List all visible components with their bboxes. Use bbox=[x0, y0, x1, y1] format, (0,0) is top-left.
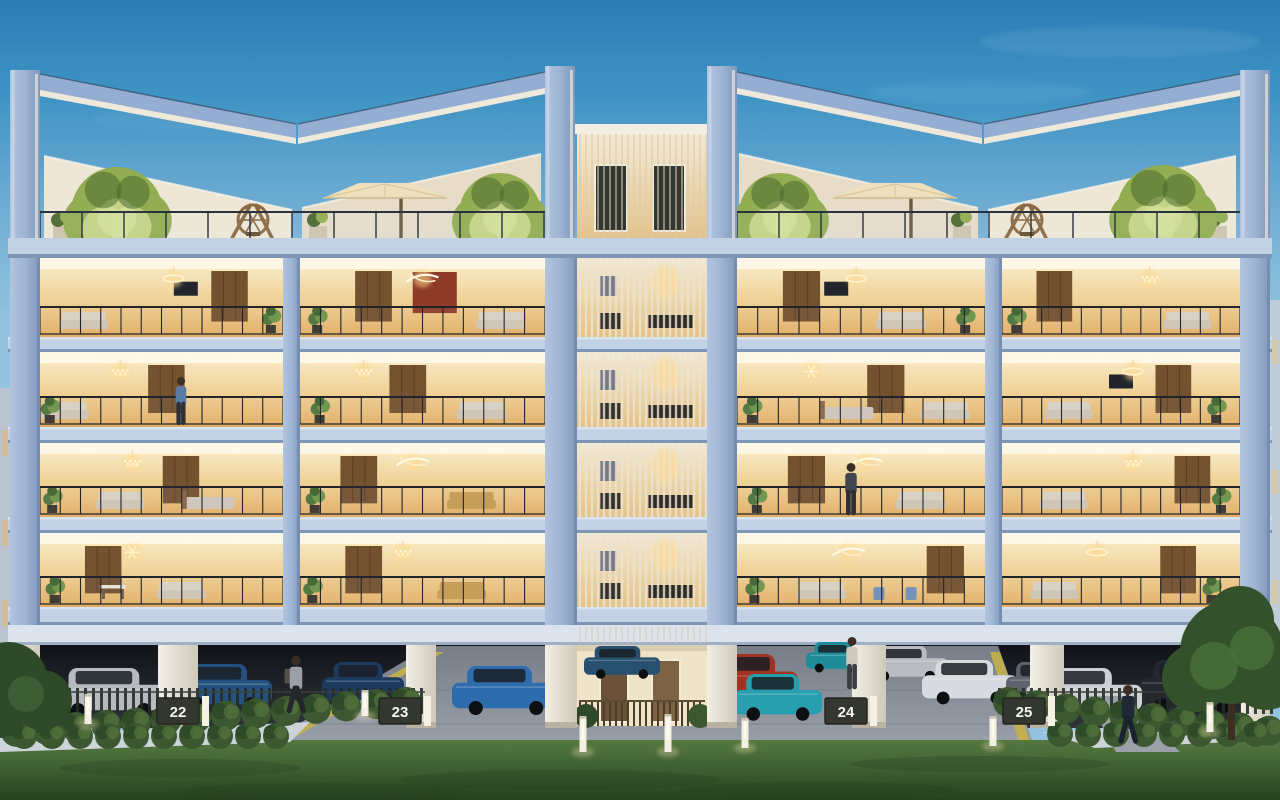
apartment-floors bbox=[8, 258, 1272, 625]
ceiling-spotlight bbox=[347, 447, 350, 450]
ceiling-spotlight bbox=[445, 537, 448, 540]
crystal-drop bbox=[394, 550, 397, 553]
apartment-unit bbox=[737, 258, 985, 337]
building-exterior-render: 22232425 bbox=[0, 0, 1280, 800]
tree-shadow-foliage bbox=[117, 176, 150, 209]
tree-canopy bbox=[1230, 626, 1274, 670]
ceiling-spotlight bbox=[785, 537, 788, 540]
slab-highlight bbox=[8, 607, 1272, 610]
apartment-unit bbox=[300, 352, 545, 427]
unit-ceiling bbox=[300, 258, 545, 269]
car-windows bbox=[882, 649, 921, 659]
crystal-drop bbox=[116, 369, 119, 372]
cove-light bbox=[1010, 454, 1232, 456]
crystal-drop bbox=[365, 374, 367, 376]
tree-shadow-foliage bbox=[500, 181, 530, 211]
ceiling-spotlight bbox=[835, 447, 838, 450]
sign-post-light bbox=[870, 696, 877, 726]
unit-ceiling bbox=[737, 258, 985, 269]
ceiling-spotlight bbox=[396, 262, 399, 265]
cove-light bbox=[48, 269, 275, 271]
ceiling-spotlight bbox=[884, 356, 887, 359]
ceiling-spotlight bbox=[1143, 262, 1146, 265]
cove-light bbox=[48, 454, 275, 456]
crystal-drop bbox=[1137, 465, 1139, 467]
post-highlight bbox=[12, 70, 15, 240]
lamp-glow bbox=[652, 448, 678, 482]
ceiling-spotlight bbox=[835, 537, 838, 540]
ceiling-spotlight bbox=[1096, 262, 1099, 265]
ceiling-spotlight bbox=[233, 262, 236, 265]
parking-sign-number: 25 bbox=[1016, 704, 1033, 721]
crystal-drop bbox=[409, 550, 412, 553]
ceiling-spotlight bbox=[87, 356, 90, 359]
core-bay bbox=[577, 443, 707, 517]
crystal-drop bbox=[124, 374, 126, 376]
crystal-drop bbox=[365, 369, 368, 372]
cove-light bbox=[48, 363, 275, 365]
bollard-cap bbox=[362, 690, 369, 693]
crystal-drop bbox=[404, 550, 407, 553]
unit-ceiling bbox=[300, 533, 545, 544]
ceiling-spotlight bbox=[1048, 356, 1051, 359]
ceiling-spotlight bbox=[934, 356, 937, 359]
hedge-highlight bbox=[1086, 724, 1099, 737]
unit-ceiling bbox=[1002, 258, 1240, 269]
crystal-drop bbox=[1134, 460, 1137, 463]
lawn-shading bbox=[850, 756, 1110, 772]
apartment-unit bbox=[1002, 533, 1240, 607]
post-highlight bbox=[547, 66, 550, 240]
crystal-drop bbox=[121, 369, 124, 372]
unit-ceiling bbox=[40, 258, 283, 269]
crystal-drop bbox=[397, 555, 399, 557]
crystal-drop bbox=[1151, 281, 1153, 283]
ceiling-spotlight bbox=[233, 537, 236, 540]
ceiling-spotlight bbox=[396, 356, 399, 359]
ceiling-spotlight bbox=[396, 447, 399, 450]
distant-lit-window bbox=[1272, 580, 1278, 604]
ceiling-spotlight bbox=[184, 262, 187, 265]
pier-shade bbox=[37, 258, 40, 625]
slab-shadow bbox=[8, 349, 1272, 352]
hedge-highlight bbox=[1142, 724, 1155, 737]
structural-pier bbox=[545, 258, 577, 625]
ceiling-spotlight bbox=[1048, 262, 1051, 265]
tree-shadow-foliage bbox=[85, 172, 122, 209]
structural-pier bbox=[1240, 258, 1270, 625]
ceiling-spotlight bbox=[494, 537, 497, 540]
unit-ceiling bbox=[40, 443, 283, 454]
slab-highlight bbox=[8, 427, 1272, 430]
ceiling-spotlight bbox=[136, 447, 139, 450]
apartment-unit bbox=[40, 533, 283, 607]
crystal-drop bbox=[1135, 465, 1137, 467]
hedge-highlight bbox=[1064, 697, 1079, 712]
car-windows bbox=[752, 677, 794, 690]
distant-lit-window bbox=[2, 520, 8, 546]
apartment-unit bbox=[1002, 443, 1240, 517]
ceiling-spotlight bbox=[347, 356, 350, 359]
ceiling-spotlight bbox=[1048, 537, 1051, 540]
crystal-drop bbox=[360, 369, 363, 372]
crystal-drop bbox=[138, 460, 141, 463]
pier-shade bbox=[999, 258, 1002, 625]
cove-light bbox=[745, 363, 977, 365]
crystal-drop bbox=[137, 465, 139, 467]
lamp-glow bbox=[652, 538, 678, 572]
crystal-drop bbox=[1129, 460, 1132, 463]
core-bay bbox=[577, 352, 707, 427]
crystal-drop bbox=[368, 374, 370, 376]
person-head bbox=[291, 656, 301, 666]
crystal-drop bbox=[124, 460, 127, 463]
ceiling-spotlight bbox=[884, 537, 887, 540]
post-lit-edge bbox=[570, 70, 573, 240]
hedge-highlight bbox=[224, 704, 239, 719]
crystal-drop bbox=[133, 460, 136, 463]
bollard-lit-core bbox=[582, 720, 584, 740]
crystal-drop bbox=[355, 369, 358, 372]
bollard-cap bbox=[665, 714, 672, 717]
hedge-highlight bbox=[162, 726, 175, 739]
bollard-cap bbox=[742, 718, 749, 721]
ceiling-spotlight bbox=[1191, 356, 1194, 359]
bollard-lit-core bbox=[992, 720, 994, 737]
hedge-highlight bbox=[134, 726, 147, 739]
tree-canopy bbox=[8, 676, 44, 712]
parking-sign-number: 24 bbox=[838, 704, 855, 721]
crystal-drop bbox=[360, 374, 362, 376]
lawn-shading bbox=[60, 759, 300, 777]
ceiling-spotlight bbox=[1191, 447, 1194, 450]
lawn-shading bbox=[680, 782, 960, 798]
cove-light bbox=[745, 269, 977, 271]
post-highlight bbox=[709, 66, 712, 240]
apartment-unit bbox=[40, 352, 283, 427]
car-wheel bbox=[815, 664, 824, 673]
apartment-unit bbox=[300, 258, 545, 337]
hedge-highlight bbox=[254, 702, 269, 717]
car-windows bbox=[195, 667, 241, 680]
car-wheel bbox=[937, 692, 950, 705]
core-bay bbox=[577, 258, 707, 337]
hedge-highlight bbox=[1254, 724, 1267, 737]
ceiling-spotlight bbox=[494, 356, 497, 359]
ceiling-spotlight bbox=[934, 537, 937, 540]
crystal-drop bbox=[1129, 465, 1131, 467]
cove-light bbox=[1010, 544, 1232, 546]
hedge-highlight bbox=[190, 726, 203, 739]
hedge-highlight bbox=[274, 726, 287, 739]
pillar-base bbox=[707, 722, 737, 728]
parking-pillar bbox=[707, 645, 737, 728]
car-wheel bbox=[747, 707, 760, 720]
car-wheel bbox=[796, 707, 809, 720]
apartment-unit bbox=[300, 443, 545, 517]
crystal-drop bbox=[1141, 276, 1144, 279]
parking-sign-number: 23 bbox=[392, 704, 409, 721]
crystal-drop bbox=[129, 465, 131, 467]
car-windows bbox=[76, 671, 133, 684]
ceiling-spotlight bbox=[445, 447, 448, 450]
lamp-glow bbox=[652, 358, 678, 392]
post-highlight bbox=[1242, 70, 1245, 240]
ceiling-spotlight bbox=[1143, 356, 1146, 359]
bollard-lit-core bbox=[364, 694, 366, 708]
crystal-drop bbox=[399, 555, 401, 557]
ceiling-spotlight bbox=[934, 447, 937, 450]
ceiling-spotlight bbox=[1191, 537, 1194, 540]
crystal-drop bbox=[134, 465, 136, 467]
tv-screen bbox=[824, 282, 848, 296]
car-windows bbox=[338, 665, 377, 677]
crystal-drop bbox=[1139, 460, 1142, 463]
structural-pier bbox=[10, 258, 40, 625]
apartment-unit bbox=[1002, 258, 1240, 337]
pier-shade bbox=[1267, 258, 1270, 625]
ceiling-spotlight bbox=[785, 447, 788, 450]
apartment-unit bbox=[737, 533, 985, 607]
apartment-unit bbox=[737, 352, 985, 427]
ceiling-spotlight bbox=[233, 356, 236, 359]
ceiling-spotlight bbox=[136, 537, 139, 540]
tree-trunk bbox=[1228, 700, 1235, 740]
slab-shadow bbox=[8, 440, 1272, 443]
car-wheel bbox=[529, 701, 543, 715]
crystal-drop bbox=[114, 374, 116, 376]
slab-highlight bbox=[8, 517, 1272, 520]
cove-light bbox=[1010, 363, 1232, 365]
ceiling-spotlight bbox=[347, 262, 350, 265]
ceiling-spotlight bbox=[884, 262, 887, 265]
tree-shadow-foliage bbox=[751, 177, 784, 210]
ceiling-spotlight bbox=[233, 447, 236, 450]
crystal-drop bbox=[1124, 460, 1127, 463]
crystal-drop bbox=[1151, 276, 1154, 279]
ceiling-spotlight bbox=[184, 537, 187, 540]
post-lit-edge bbox=[35, 74, 38, 240]
cloud bbox=[870, 80, 1090, 104]
unit-ceiling bbox=[40, 533, 283, 544]
crystal-drop bbox=[131, 465, 133, 467]
cove-light bbox=[308, 363, 537, 365]
ceiling-spotlight bbox=[494, 262, 497, 265]
slab-highlight bbox=[8, 337, 1272, 340]
ceiling-spotlight bbox=[136, 356, 139, 359]
crystal-drop bbox=[1146, 281, 1148, 283]
ceiling-spotlight bbox=[445, 262, 448, 265]
chandelier-spark bbox=[123, 543, 141, 561]
distant-lit-window bbox=[1272, 340, 1278, 364]
distant-lit-window bbox=[2, 600, 8, 626]
sign-post-light bbox=[1048, 696, 1055, 726]
person-head bbox=[1123, 685, 1133, 695]
crystal-drop bbox=[112, 369, 115, 372]
pier-shade bbox=[297, 258, 300, 625]
apartment-unit bbox=[40, 258, 283, 337]
car-wheel bbox=[596, 669, 606, 679]
bollard-cap bbox=[85, 694, 92, 697]
person-head bbox=[848, 637, 857, 646]
core-cap bbox=[569, 124, 715, 134]
pier-shade bbox=[734, 258, 737, 625]
ceiling-spotlight bbox=[785, 356, 788, 359]
ceiling-spotlight bbox=[184, 447, 187, 450]
crystal-drop bbox=[399, 550, 402, 553]
ceiling-spotlight bbox=[87, 262, 90, 265]
ceiling-spotlight bbox=[1048, 447, 1051, 450]
tree-shadow-foliage bbox=[1163, 174, 1196, 207]
tree-shadow-foliage bbox=[471, 177, 504, 210]
unit-ceiling bbox=[1002, 443, 1240, 454]
hedge-highlight bbox=[314, 697, 329, 712]
apartment-unit bbox=[737, 443, 985, 517]
ceiling-spotlight bbox=[1191, 262, 1194, 265]
hedge-highlight bbox=[1093, 700, 1108, 715]
unit-ceiling bbox=[300, 443, 545, 454]
hedge-highlight bbox=[1058, 724, 1071, 737]
ceiling-spotlight bbox=[184, 356, 187, 359]
unit-ceiling bbox=[737, 352, 985, 363]
cove-light bbox=[745, 544, 977, 546]
crystal-drop bbox=[1127, 465, 1129, 467]
apartment-unit bbox=[300, 533, 545, 607]
structural-pier bbox=[707, 258, 737, 625]
pier-shade bbox=[574, 258, 577, 625]
car-windows bbox=[818, 645, 847, 653]
lawn-shading bbox=[400, 770, 720, 790]
hedge-highlight bbox=[1180, 710, 1195, 725]
crystal-drop bbox=[126, 465, 128, 467]
bollard-cap bbox=[580, 716, 587, 719]
tree-shadow-foliage bbox=[1131, 170, 1168, 207]
ceiling-spotlight bbox=[347, 537, 350, 540]
crystal-drop bbox=[126, 369, 129, 372]
bollard-lit-core bbox=[667, 718, 669, 739]
bollard-lit-core bbox=[1209, 706, 1211, 723]
crystal-drop bbox=[358, 374, 360, 376]
hedge-highlight bbox=[344, 695, 359, 710]
crystal-drop bbox=[129, 460, 132, 463]
ceiling-spotlight bbox=[87, 537, 90, 540]
ceiling-spotlight bbox=[1096, 537, 1099, 540]
ceiling-spotlight bbox=[1096, 447, 1099, 450]
lamp-glow bbox=[652, 265, 678, 299]
cloud bbox=[980, 26, 1260, 58]
hedge-highlight bbox=[1151, 707, 1166, 722]
ceiling-spotlight bbox=[1143, 537, 1146, 540]
ceiling-spotlight bbox=[835, 356, 838, 359]
crystal-drop bbox=[122, 374, 124, 376]
crystal-drop bbox=[1132, 465, 1134, 467]
crystal-drop bbox=[402, 555, 404, 557]
unit-ceiling bbox=[300, 352, 545, 363]
slab-shadow bbox=[8, 530, 1272, 533]
ceiling-spotlight bbox=[785, 262, 788, 265]
car-wheel bbox=[638, 669, 648, 679]
crystal-drop bbox=[370, 369, 373, 372]
crystal-drop bbox=[1143, 281, 1145, 283]
hedge-highlight bbox=[246, 726, 259, 739]
ceiling-spotlight bbox=[934, 262, 937, 265]
cove-light bbox=[1010, 269, 1232, 271]
sign-post-light bbox=[202, 696, 209, 726]
crystal-drop bbox=[1149, 281, 1151, 283]
crystal-drop bbox=[117, 374, 119, 376]
ceiling-spotlight bbox=[87, 447, 90, 450]
roof-slab-shadow bbox=[8, 254, 1272, 258]
hedge-highlight bbox=[1170, 724, 1183, 737]
post-lit-edge bbox=[732, 70, 735, 240]
core-bay bbox=[577, 533, 707, 607]
pillar-base bbox=[545, 722, 577, 728]
person-head bbox=[847, 463, 856, 472]
crystal-drop bbox=[119, 374, 121, 376]
ceiling-spotlight bbox=[445, 356, 448, 359]
slab-shadow bbox=[8, 622, 1272, 625]
ceiling-spotlight bbox=[1096, 356, 1099, 359]
cove-light bbox=[308, 544, 537, 546]
hedge-highlight bbox=[218, 726, 231, 739]
unit-ceiling bbox=[40, 352, 283, 363]
unit-ceiling bbox=[1002, 533, 1240, 544]
distant-lit-window bbox=[2, 430, 8, 456]
cove-light bbox=[48, 544, 275, 546]
car-wheel bbox=[469, 701, 483, 715]
screenshot-root: 22232425 bbox=[0, 0, 1280, 800]
unit-ceiling bbox=[737, 443, 985, 454]
person-head bbox=[177, 377, 185, 385]
unit-ceiling bbox=[737, 533, 985, 544]
ceiling-spotlight bbox=[835, 262, 838, 265]
parking-pillar bbox=[545, 645, 577, 728]
ceiling-spotlight bbox=[1143, 447, 1146, 450]
crystal-drop bbox=[1155, 276, 1158, 279]
distant-lit-window bbox=[1272, 470, 1278, 494]
bollard-cap bbox=[1207, 702, 1214, 705]
crystal-drop bbox=[405, 555, 407, 557]
ceiling-spotlight bbox=[494, 447, 497, 450]
crystal-drop bbox=[1146, 276, 1149, 279]
unit-ceiling bbox=[1002, 352, 1240, 363]
car-windows bbox=[474, 669, 526, 682]
cove-light bbox=[308, 454, 537, 456]
crystal-drop bbox=[1154, 281, 1156, 283]
apartment-unit bbox=[1002, 352, 1240, 427]
crystal-drop bbox=[407, 555, 409, 557]
tree-shadow-foliage bbox=[780, 181, 810, 211]
post-lit-edge bbox=[1265, 74, 1268, 240]
bollard-lit-core bbox=[744, 722, 746, 739]
apartment-unit bbox=[40, 443, 283, 517]
car-windows bbox=[941, 663, 987, 675]
chandelier-spark bbox=[802, 363, 820, 381]
sign-post-light bbox=[424, 696, 431, 726]
ceiling-spotlight bbox=[136, 262, 139, 265]
ceiling-spotlight bbox=[396, 537, 399, 540]
car-windows bbox=[599, 649, 635, 658]
bollard-cap bbox=[990, 716, 997, 719]
hedge-highlight bbox=[106, 726, 119, 739]
bollard-lit-core bbox=[87, 698, 89, 715]
ceiling-spotlight bbox=[884, 447, 887, 450]
crystal-drop bbox=[363, 374, 365, 376]
parking-sign-number: 22 bbox=[170, 704, 187, 721]
